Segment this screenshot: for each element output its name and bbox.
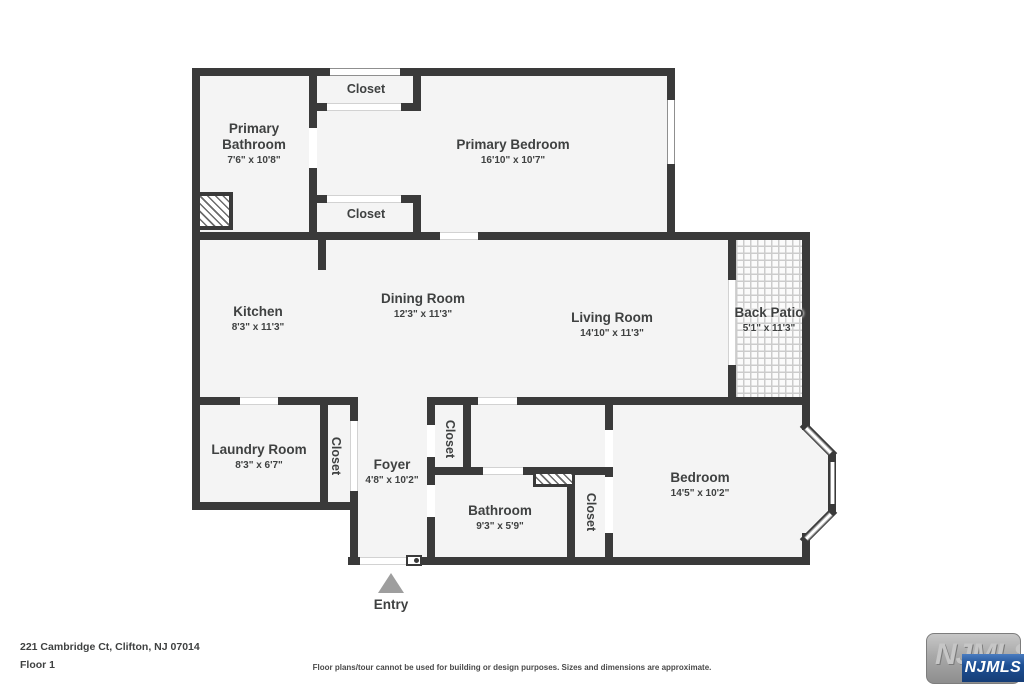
window bbox=[667, 100, 675, 164]
entry-arrow-icon bbox=[378, 573, 404, 593]
shower-hatch bbox=[196, 192, 233, 230]
bay-window-center bbox=[830, 462, 835, 504]
bathroom-door-opening bbox=[427, 485, 435, 517]
closet-door-opening bbox=[427, 425, 435, 457]
room-label-bathroom: Bathroom 9'3" x 5'9" bbox=[468, 503, 532, 533]
address-text: 221 Cambridge Ct, Clifton, NJ 07014 bbox=[20, 641, 200, 653]
room-label-back-patio: Back Patio 5'1" x 11'3" bbox=[734, 305, 803, 335]
door-opening bbox=[327, 195, 401, 203]
room-label-foyer: Foyer 4'8" x 10'2" bbox=[365, 457, 418, 487]
wall bbox=[320, 405, 328, 510]
room-label-kitchen: Kitchen 8'3" x 11'3" bbox=[232, 304, 285, 334]
wall bbox=[427, 467, 483, 475]
closet-door-opening bbox=[605, 477, 613, 533]
door-opening bbox=[240, 397, 278, 405]
room-label-primary-bedroom: Primary Bedroom 16'10" x 10'7" bbox=[456, 137, 569, 167]
bathroom-fixture-hatch bbox=[533, 471, 575, 487]
room-label-dining-room: Dining Room 12'3" x 11'3" bbox=[381, 291, 465, 321]
entry-label: Entry bbox=[374, 597, 409, 612]
room-label-living-room: Living Room 14'10" x 11'3" bbox=[571, 310, 653, 340]
bathroom-door-opening bbox=[483, 467, 523, 475]
door-opening bbox=[440, 232, 478, 240]
closet-label-foyer: Closet bbox=[443, 420, 457, 458]
closet-door-opening bbox=[350, 421, 358, 491]
entry-door-knob bbox=[414, 558, 419, 563]
wall bbox=[192, 502, 358, 510]
door-opening bbox=[478, 397, 517, 405]
wall bbox=[318, 240, 326, 270]
closet-label-laundry: Closet bbox=[329, 437, 343, 475]
wall bbox=[463, 405, 471, 475]
bedroom-door-opening bbox=[605, 430, 613, 467]
window bbox=[330, 68, 400, 76]
wall bbox=[192, 68, 200, 510]
door-opening bbox=[327, 103, 401, 111]
wall bbox=[192, 68, 675, 76]
closet-label-top: Closet bbox=[347, 82, 385, 96]
floor-plan: Primary Bathroom 7'6" x 10'8" Closet Pri… bbox=[0, 0, 1024, 682]
njmls-badge-logo: NJMLS bbox=[962, 654, 1024, 682]
room-label-bedroom: Bedroom 14'5" x 10'2" bbox=[670, 470, 729, 500]
door-opening bbox=[309, 128, 317, 168]
wall bbox=[192, 232, 810, 240]
room-label-laundry-room: Laundry Room 8'3" x 6'7" bbox=[211, 442, 306, 472]
closet-label-middle: Closet bbox=[347, 207, 385, 221]
entry-door-opening bbox=[360, 557, 407, 565]
floor-area-main bbox=[196, 236, 806, 401]
closet-label-bedroom: Closet bbox=[584, 493, 598, 531]
floor-number-text: Floor 1 bbox=[20, 659, 55, 671]
wall bbox=[413, 68, 421, 111]
room-label-primary-bathroom: Primary Bathroom 7'6" x 10'8" bbox=[204, 121, 304, 167]
floor-area-bedroom-block bbox=[431, 401, 806, 561]
disclaimer-text: Floor plans/tour cannot be used for buil… bbox=[313, 663, 712, 672]
wall bbox=[427, 557, 810, 565]
njmls-badge-text: NJMLS bbox=[965, 659, 1022, 677]
